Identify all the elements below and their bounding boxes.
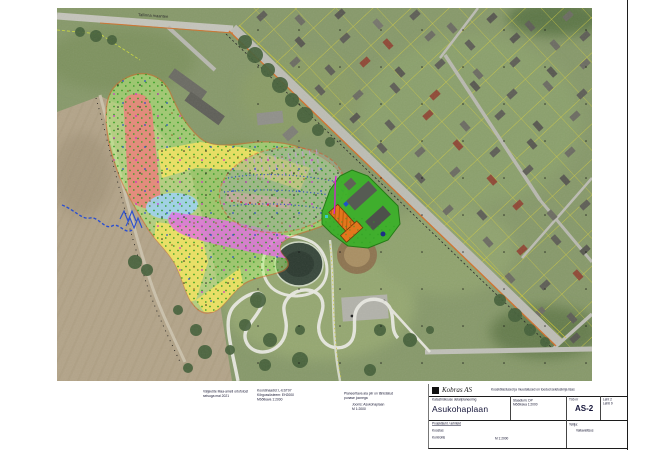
drawing-title: Asukohaplaan [432, 404, 488, 414]
title-block: Kobras AS Kooskõlastused ja muudatused o… [428, 384, 628, 449]
company-logo-icon [432, 387, 439, 394]
approval-note: Kooskõlastused ja muudatused on toodud s… [491, 388, 650, 396]
drawing-sheet: { "map": { "road_label": "Tallinna maant… [0, 0, 650, 459]
company-name: Kobras AS [442, 386, 472, 394]
sheet-frame-line [627, 0, 628, 450]
client-value: Vallavalitsus [576, 429, 611, 437]
author-line-3: Kontrollis [432, 436, 458, 444]
work-number: AS-2 [575, 404, 593, 413]
footer-scale: M 1:2000 [495, 437, 522, 445]
note-block-2: Koordinaadid: L-EST97Kõrgussüsteem: EH20… [257, 389, 328, 414]
stage-line: Staadium: DPMõõtkava 1:2000 [513, 399, 562, 415]
note-block-4: Joonis: AsukohaplaanM 1:2000 [352, 403, 414, 420]
sheet-counts: Leht 2Lehti 9 [603, 398, 622, 414]
